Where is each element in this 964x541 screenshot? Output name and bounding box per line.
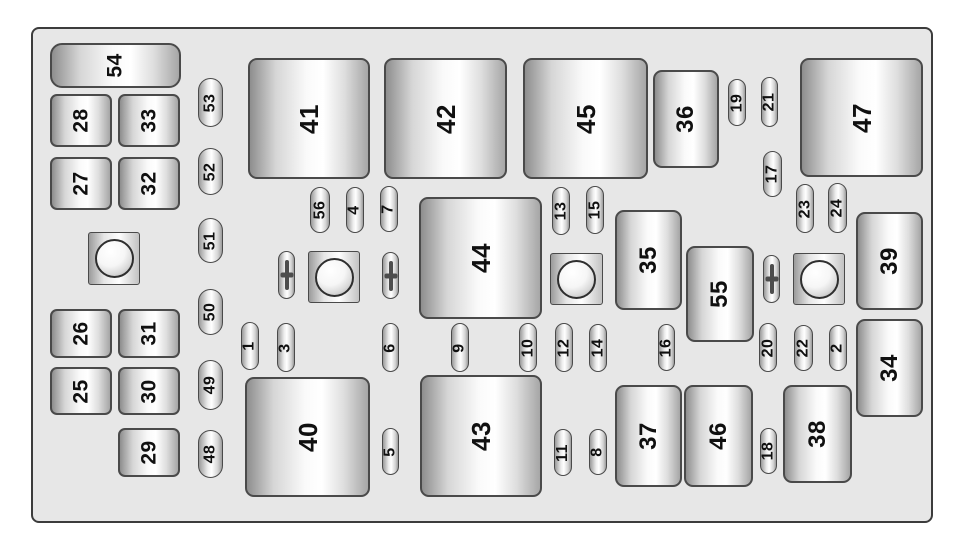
fuse-40: 40 <box>245 377 370 497</box>
fuse-16: 16 <box>658 324 675 371</box>
fuse-8: 8 <box>589 429 607 475</box>
fuse-number-label: 27 <box>70 171 91 195</box>
fuse-26: 26 <box>50 309 112 358</box>
stud-circle-icon <box>315 258 354 297</box>
fuse-34: 34 <box>856 319 923 417</box>
fuse-number-label: 28 <box>70 108 91 132</box>
fuse-number-label: 56 <box>312 201 328 220</box>
fuse-23: 23 <box>796 184 814 233</box>
fuse-number-label: 22 <box>796 339 812 358</box>
fuse-4: 4 <box>346 187 364 233</box>
fuse-42: 42 <box>384 58 507 179</box>
mounting-stud-4 <box>793 253 845 305</box>
fuse-number-label: 14 <box>590 339 606 358</box>
fuse-number-label: 5 <box>383 447 399 456</box>
fuse-54: 54 <box>50 43 181 88</box>
fuse-number-label: 46 <box>706 422 730 450</box>
fuse-45: 45 <box>523 58 648 179</box>
fuse-number-label: 12 <box>556 338 572 357</box>
fuse-37: 37 <box>615 385 682 487</box>
fuse-50: 50 <box>198 289 223 335</box>
fuse-39: 39 <box>856 212 923 310</box>
fuse-number-label: 19 <box>729 93 745 112</box>
fuse-number-label: 3 <box>278 343 294 352</box>
fuse-number-label: 20 <box>760 338 776 357</box>
bolt-cross-icon <box>383 260 398 292</box>
fuse-number-label: 50 <box>202 303 218 322</box>
fuse-36: 36 <box>653 70 719 168</box>
fuse-10: 10 <box>519 323 537 372</box>
fuse-number-label: 33 <box>138 108 159 132</box>
fuse-56: 56 <box>310 187 330 233</box>
fuse-27: 27 <box>50 157 112 210</box>
bolt-terminal-3 <box>763 255 780 303</box>
fuse-20: 20 <box>759 323 777 372</box>
fuse-2: 2 <box>829 325 847 371</box>
fuse-number-label: 8 <box>590 447 606 456</box>
fuse-number-label: 7 <box>381 204 397 213</box>
fuse-number-label: 49 <box>202 376 218 395</box>
fuse-number-label: 2 <box>830 343 846 352</box>
fuse-number-label: 6 <box>383 343 399 352</box>
fuse-52: 52 <box>198 148 223 195</box>
fuse-38: 38 <box>783 385 852 483</box>
fuse-49: 49 <box>198 360 223 410</box>
fuse-13: 13 <box>552 187 570 235</box>
fuse-17: 17 <box>763 151 782 197</box>
bolt-cross-icon <box>764 263 779 295</box>
fuse-number-label: 36 <box>674 105 698 133</box>
fuse-box-diagram: 5428332732263125302953525150494841424547… <box>0 0 964 541</box>
fuse-number-label: 54 <box>105 53 126 77</box>
fuse-44: 44 <box>419 197 542 319</box>
fuse-25: 25 <box>50 367 112 415</box>
fuse-number-label: 34 <box>877 354 901 382</box>
fuse-number-label: 53 <box>202 93 218 112</box>
mounting-stud-3 <box>550 253 603 305</box>
fuse-number-label: 24 <box>830 199 846 218</box>
fuse-46: 46 <box>684 385 753 487</box>
fuse-number-label: 43 <box>468 421 494 451</box>
fuse-24: 24 <box>828 183 847 233</box>
fuse-30: 30 <box>118 367 180 415</box>
fuse-21: 21 <box>761 77 778 127</box>
bolt-terminal-2 <box>382 252 399 299</box>
fuse-number-label: 4 <box>347 205 363 214</box>
fuse-15: 15 <box>586 186 604 234</box>
fuse-47: 47 <box>800 58 923 177</box>
fuse-number-label: 21 <box>762 93 778 112</box>
fuse-number-label: 55 <box>708 280 732 308</box>
fuse-43: 43 <box>420 375 542 497</box>
fuse-32: 32 <box>118 157 180 210</box>
fuse-number-label: 44 <box>467 243 493 273</box>
fuse-number-label: 39 <box>877 247 901 275</box>
fuse-31: 31 <box>118 309 180 358</box>
fuse-number-label: 25 <box>70 379 91 403</box>
fuse-number-label: 42 <box>432 104 458 134</box>
stud-circle-icon <box>557 260 596 299</box>
fuse-55: 55 <box>686 246 754 342</box>
fuse-14: 14 <box>589 324 607 372</box>
fuse-48: 48 <box>198 430 223 478</box>
stud-circle-icon <box>95 239 134 278</box>
fuse-6: 6 <box>382 323 399 372</box>
fuse-7: 7 <box>380 186 398 232</box>
fuse-number-label: 48 <box>202 445 218 464</box>
fuse-35: 35 <box>615 210 682 310</box>
fuse-number-label: 52 <box>202 162 218 181</box>
fuse-number-label: 37 <box>636 422 660 450</box>
fuse-number-label: 31 <box>138 321 159 345</box>
bolt-terminal-1 <box>278 251 295 299</box>
fuse-number-label: 38 <box>805 420 829 448</box>
fuse-number-label: 47 <box>848 103 874 133</box>
fuse-53: 53 <box>198 78 223 127</box>
fuse-5: 5 <box>382 428 399 475</box>
mounting-stud-1 <box>88 232 140 285</box>
fuse-41: 41 <box>248 58 370 179</box>
fuse-11: 11 <box>554 429 572 476</box>
fuse-number-label: 45 <box>572 104 598 134</box>
bolt-cross-icon <box>279 259 294 291</box>
fuse-number-label: 10 <box>520 338 536 357</box>
fuse-22: 22 <box>794 325 813 371</box>
fuse-number-label: 13 <box>553 202 569 221</box>
fuse-1: 1 <box>241 322 259 370</box>
fuse-number-label: 17 <box>765 165 781 184</box>
fuse-number-label: 51 <box>202 231 218 250</box>
fuse-51: 51 <box>198 218 223 263</box>
fuse-number-label: 15 <box>587 201 603 220</box>
fuse-19: 19 <box>728 79 746 126</box>
fuse-number-label: 40 <box>294 422 320 452</box>
fuse-number-label: 11 <box>555 444 571 462</box>
fuse-29: 29 <box>118 428 180 477</box>
fuse-number-label: 32 <box>138 171 159 195</box>
fuse-number-label: 35 <box>636 246 660 274</box>
fuse-number-label: 16 <box>659 338 675 357</box>
fuse-number-label: 18 <box>761 442 777 461</box>
fuse-number-label: 30 <box>138 379 159 403</box>
fuse-number-label: 9 <box>452 343 468 352</box>
fuse-number-label: 23 <box>797 199 813 218</box>
fuse-number-label: 29 <box>138 440 159 464</box>
fuse-number-label: 1 <box>242 341 258 350</box>
fuse-18: 18 <box>760 428 777 474</box>
mounting-stud-2 <box>308 251 360 303</box>
fuse-9: 9 <box>451 323 469 372</box>
fuse-33: 33 <box>118 94 180 147</box>
fuse-3: 3 <box>277 323 295 372</box>
fuse-28: 28 <box>50 94 112 147</box>
fuse-number-label: 26 <box>70 321 91 345</box>
fuse-12: 12 <box>555 323 573 372</box>
stud-circle-icon <box>800 260 839 299</box>
fuse-number-label: 41 <box>296 104 322 134</box>
